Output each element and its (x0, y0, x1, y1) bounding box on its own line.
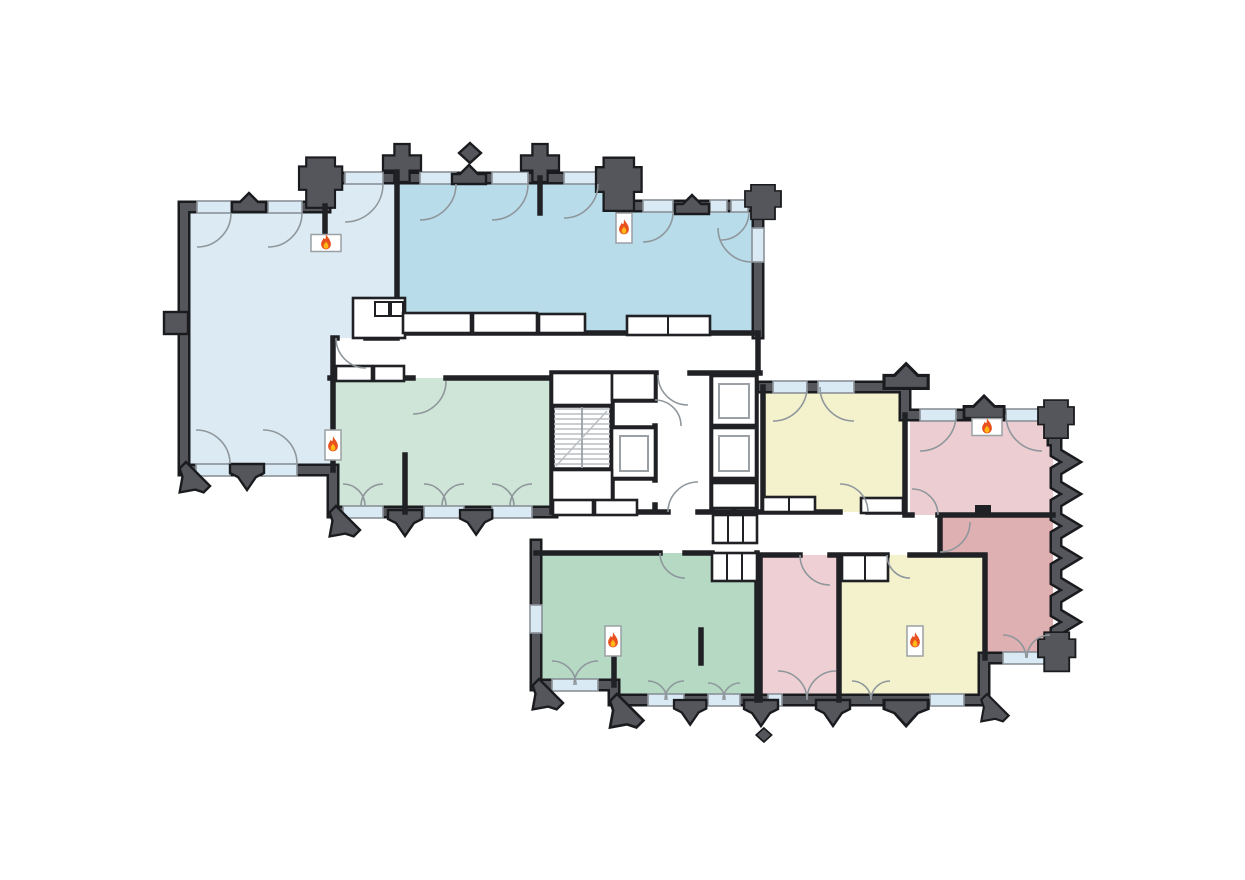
window (420, 172, 456, 184)
closet (713, 515, 757, 543)
counter (403, 313, 471, 333)
closet (336, 366, 372, 381)
appliance (375, 302, 389, 316)
chimney-stub (164, 312, 188, 334)
buttress-diamond-icon (459, 143, 481, 163)
window (930, 694, 964, 706)
corner-tower-icon (596, 158, 642, 211)
window (197, 201, 231, 213)
room-mid-yellow (763, 387, 905, 512)
buttress-icon (675, 195, 709, 214)
closet (374, 366, 404, 381)
window (564, 172, 598, 184)
window (530, 605, 542, 633)
closet (712, 553, 757, 581)
window (752, 228, 764, 262)
closet (553, 500, 593, 515)
corner-tower-icon (745, 185, 781, 220)
buttress-icon (232, 193, 266, 212)
buttress-spike-icon (230, 464, 264, 490)
counter (539, 314, 585, 333)
window (263, 464, 297, 476)
stair-closet (552, 373, 612, 405)
corner-tower-icon (299, 157, 342, 207)
window (1006, 409, 1042, 421)
door-arc (668, 482, 698, 512)
window (424, 506, 464, 518)
window (920, 409, 956, 421)
buttress-spike-icon (816, 700, 850, 726)
buttress-spike-icon (744, 700, 778, 726)
buttress-spike-icon (460, 510, 492, 535)
door-arc (336, 338, 366, 368)
window (492, 172, 528, 184)
buttress-diamond-icon (756, 728, 771, 742)
closet (595, 500, 637, 515)
buttress-icon (452, 165, 486, 184)
floor-plan-svg (0, 0, 1245, 880)
corner-tower-icon (1038, 400, 1074, 438)
window (345, 172, 383, 184)
counter (473, 313, 537, 333)
appliance (391, 302, 403, 316)
wall-stub (975, 505, 991, 517)
window (818, 381, 854, 393)
closet (612, 373, 655, 400)
buttress-spike-icon (884, 700, 928, 726)
buttress-spike-icon (674, 700, 706, 725)
floor-plan-canvas (0, 0, 1245, 880)
room-s-pink (760, 555, 838, 700)
window (268, 201, 302, 213)
window (710, 200, 727, 212)
window (773, 381, 807, 393)
window (196, 464, 230, 476)
buttress-icon (964, 396, 1004, 418)
staircase (554, 407, 610, 468)
window (643, 200, 673, 212)
window (492, 506, 532, 518)
corner-tower-icon (1038, 632, 1075, 671)
buttress-icon (884, 364, 928, 389)
closet (712, 483, 756, 508)
window (343, 506, 383, 518)
